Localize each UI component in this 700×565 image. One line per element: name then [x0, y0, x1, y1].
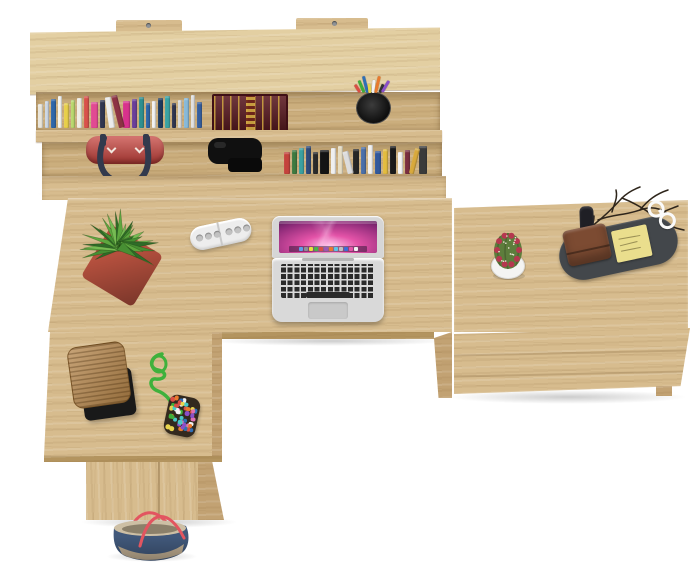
book-spine: [398, 152, 403, 174]
sideboard-foot: [656, 386, 672, 396]
cactus-flower: [514, 238, 520, 244]
cactus-spine-dot: [515, 237, 517, 239]
screw-icon: [332, 21, 337, 26]
pens: [354, 82, 392, 104]
book-spine: [71, 100, 75, 128]
dock-icon: [324, 247, 328, 251]
cactus-flower: [508, 233, 514, 239]
dock-icon: [314, 247, 318, 251]
dock-icon: [344, 247, 348, 251]
cactus-flower: [502, 261, 508, 267]
cactus-spine-dot: [509, 239, 511, 241]
drawer-seam: [454, 370, 690, 377]
book-spine: [284, 152, 290, 174]
pom-bead: [178, 420, 183, 425]
dock-icon: [319, 247, 323, 251]
scene-desk-setup: [0, 0, 700, 565]
pen: [381, 80, 390, 93]
dock-icon: [329, 247, 333, 251]
book-spine: [390, 146, 396, 174]
book-row-lower: [284, 144, 434, 174]
book-spine: [191, 95, 195, 128]
book-spine: [158, 98, 163, 128]
book-spine: [64, 103, 69, 128]
book-spine: [45, 101, 49, 128]
book-spine: [306, 146, 311, 174]
cactus-flower: [496, 238, 502, 244]
dock-icon: [354, 247, 358, 251]
pompom-pouch: [162, 393, 202, 439]
cactus-flower: [516, 247, 522, 253]
book-spine: [100, 100, 105, 128]
dock: [289, 246, 367, 252]
book-spine: [184, 98, 189, 128]
cactus-spine-dot: [498, 251, 500, 253]
sideboard-side-panel: [434, 332, 452, 398]
cactus-spine-dot: [503, 241, 505, 243]
book-spine: [313, 152, 318, 174]
laptop-trackpad: [308, 302, 348, 319]
highlight: [214, 142, 226, 148]
book-spine: [77, 98, 82, 128]
dock-icon: [339, 247, 343, 251]
book-row-upper: [38, 94, 214, 128]
handwriting-line: [621, 247, 641, 252]
handwriting-line: [620, 241, 638, 246]
cactus-spine-dot: [513, 244, 515, 246]
desk-return-side-panel: [212, 332, 222, 456]
book-spine: [361, 147, 366, 174]
book-spine: [342, 151, 353, 174]
wall-shelf: [28, 16, 444, 206]
handwriting-line: [618, 235, 640, 240]
cactus-spine-dot: [506, 235, 508, 237]
cactus-spine-dot: [513, 242, 515, 244]
cactus-flower: [508, 261, 514, 267]
book-spine: [338, 146, 343, 175]
cactus-spine-dot: [510, 253, 512, 255]
spacebar-key: [306, 292, 350, 298]
book-spine: [331, 148, 336, 174]
book-spine: [353, 149, 359, 174]
dock-icon: [334, 247, 338, 251]
pom-bead: [165, 424, 170, 429]
potted-plant: [58, 192, 174, 308]
cactus-spine-dot: [501, 260, 503, 262]
book-spine: [51, 99, 56, 128]
tote-bag: [102, 498, 202, 564]
book-spine: [197, 102, 202, 128]
cactus-spine-dot: [514, 239, 516, 241]
book-spine: [84, 96, 89, 128]
headphones-body: [228, 158, 262, 172]
headphones: [206, 136, 266, 174]
book-spine: [132, 99, 137, 128]
pen-cup: [352, 84, 394, 124]
paper-stack-group: [66, 342, 142, 426]
cactus-spine-dot: [508, 247, 510, 249]
desk-front-edge: [212, 332, 434, 339]
book-spine: [292, 150, 297, 174]
antique-book: [212, 94, 288, 132]
book-spine: [139, 97, 144, 128]
book-spine: [146, 103, 150, 128]
shelf-upper-compartment: [36, 92, 440, 130]
sideboard-front: [454, 328, 690, 394]
cactus-spine-dot: [503, 260, 505, 262]
book-spine: [383, 149, 388, 175]
pompom-charm-group: [140, 352, 210, 444]
dock-icon: [299, 247, 303, 251]
cactus-spine-dot: [505, 260, 507, 262]
dock-icon: [304, 247, 308, 251]
pom-bead: [185, 406, 190, 411]
menu-bar: [279, 221, 377, 224]
shelf-lower-compartment: [42, 142, 442, 176]
book-spine: [299, 148, 304, 174]
cactus-flower: [514, 256, 520, 262]
book-spine: [38, 104, 43, 128]
cactus-spine-dot: [511, 253, 513, 255]
book-spine: [320, 150, 329, 174]
screw-icon: [146, 23, 151, 28]
book-spine: [152, 101, 156, 128]
paper-stack: [66, 340, 132, 409]
cactus-plant: [482, 224, 534, 282]
book-spine: [368, 145, 373, 174]
book-spine: [58, 96, 62, 128]
drawer-seam: [454, 349, 690, 356]
macbook-laptop: [272, 216, 384, 322]
book-spine: [165, 96, 170, 128]
dock-icon: [349, 247, 353, 251]
cactus-spine-dot: [505, 242, 507, 244]
laptop-lid: [272, 216, 384, 258]
book-spine: [91, 102, 98, 128]
dock-icon: [309, 247, 313, 251]
book-spine: [172, 103, 176, 129]
book-spine: [419, 146, 427, 174]
book-spine: [375, 151, 381, 174]
book-spine: [178, 100, 182, 128]
laptop-hinge: [302, 258, 354, 261]
